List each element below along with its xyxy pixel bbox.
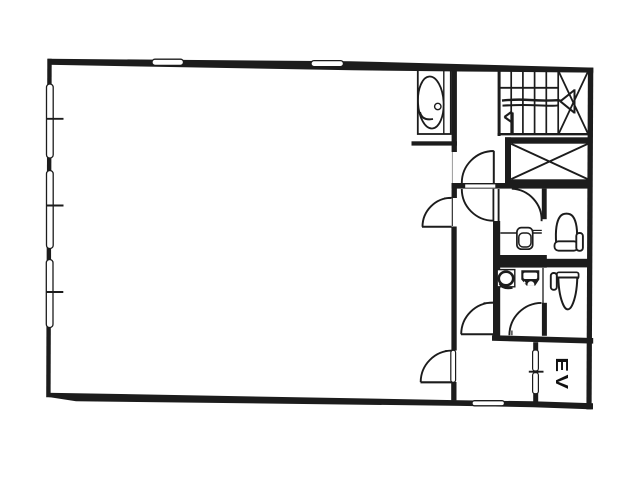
- svg-text:EV: EV: [551, 357, 570, 391]
